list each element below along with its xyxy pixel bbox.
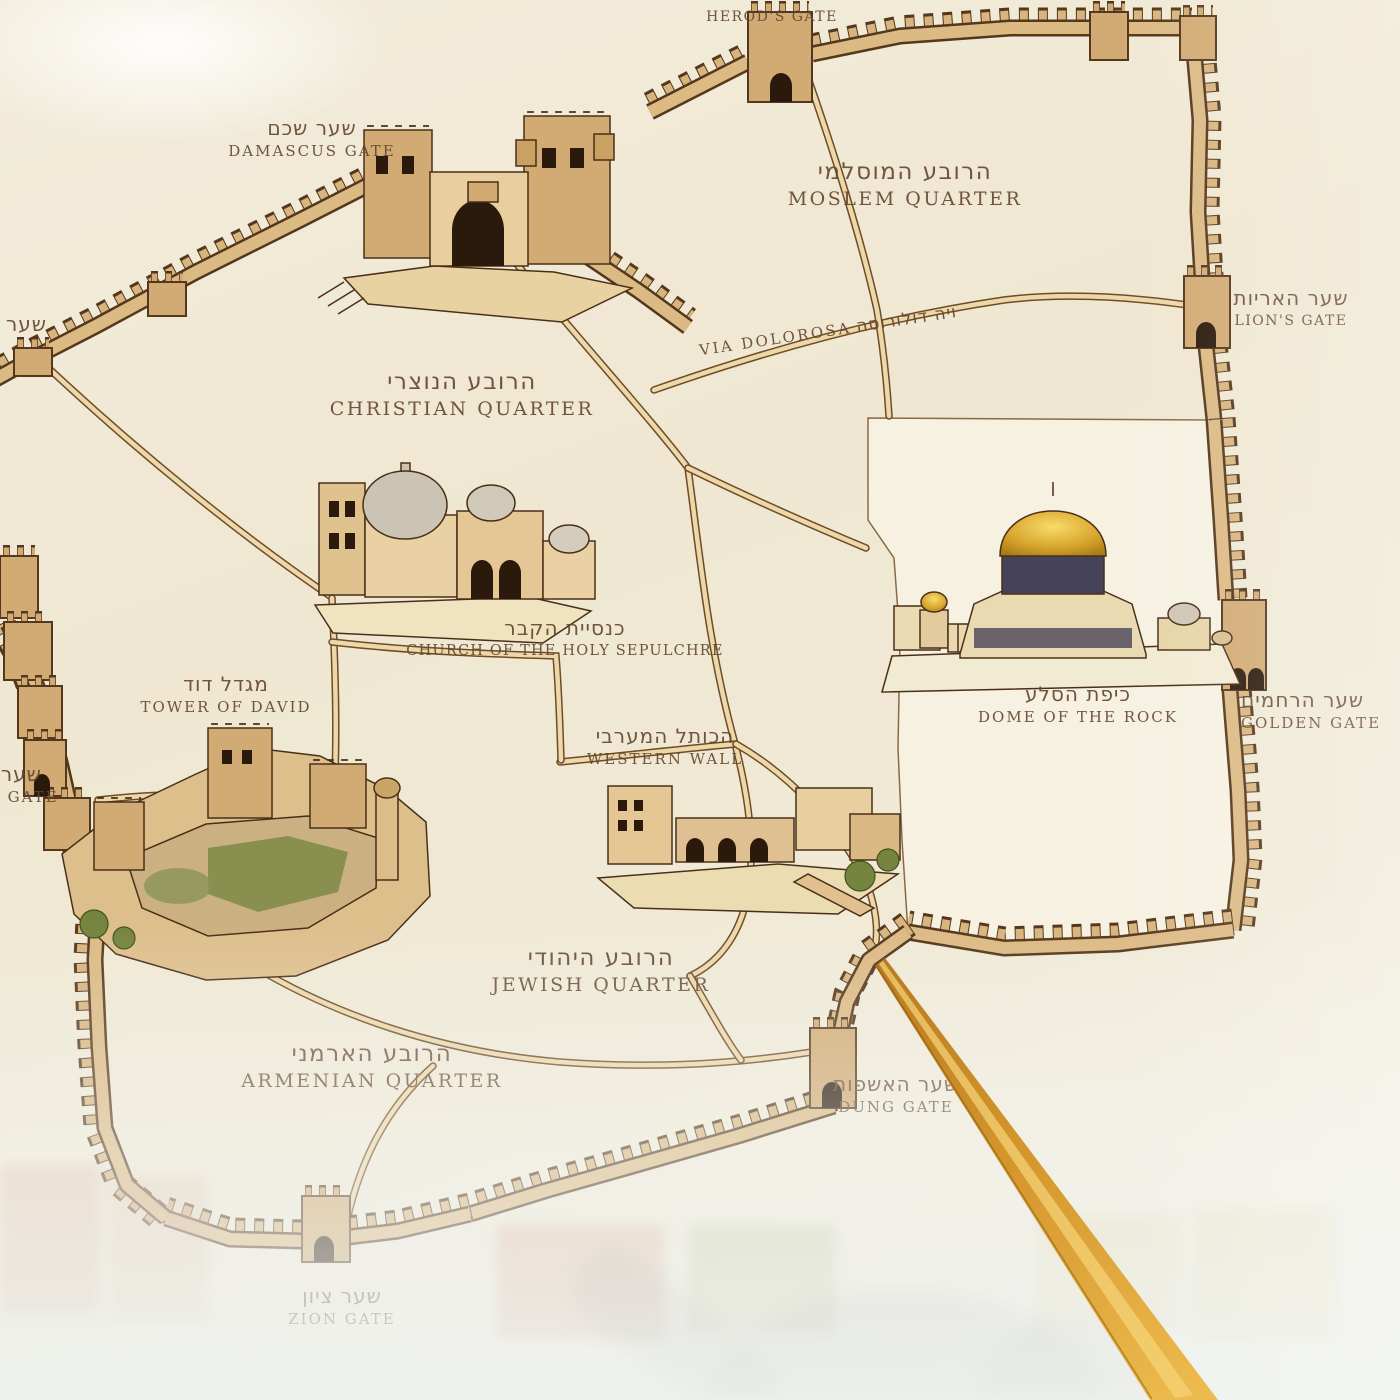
label-armenian-quarter: הרובע הארמני ARMENIAN QUARTER <box>241 1040 502 1094</box>
jaffa-gate-he: שער י <box>0 762 59 786</box>
label-christian-quarter: הרובע הנוצרי CHRISTIAN QUARTER <box>330 368 595 422</box>
western-wall-en: WESTERN WALL <box>587 748 743 771</box>
dung-gate-he: שער האשפות <box>833 1072 959 1096</box>
damascus-gate-he: שער שכם <box>228 116 395 140</box>
jewish-quarter-en: JEWISH QUARTER <box>492 972 711 998</box>
moslem-quarter-en: MOSLEM QUARTER <box>788 186 1023 212</box>
armenian-quarter-he: הרובע הארמני <box>241 1040 502 1068</box>
lions-gate-he: שער האריות <box>1233 286 1348 310</box>
label-moslem-quarter: הרובע המוסלמי MOSLEM QUARTER <box>788 158 1023 212</box>
herods-gate-en: HEROD'S GATE <box>706 6 838 29</box>
tower-of-david-en: TOWER OF DAVID <box>140 696 311 719</box>
reflection-tile <box>108 1175 208 1320</box>
via-dolorosa-en: VIA DOLOROSA <box>698 317 853 362</box>
reflection-tile <box>1192 1210 1335 1340</box>
label-tower-of-david: מגדל דוד TOWER OF DAVID <box>140 672 311 719</box>
zion-gate-tower <box>302 1196 350 1262</box>
via-dolorosa-he: ויה דולורוסה <box>855 300 959 339</box>
western-wall-he: הכותל המערבי <box>587 724 743 748</box>
reflection-tile <box>1035 1215 1180 1330</box>
western-wall-illustration <box>598 786 900 916</box>
zion-gate-he: שער ציון <box>288 1284 396 1308</box>
armenian-quarter-en: ARMENIAN QUARTER <box>241 1068 502 1094</box>
landmark-illustrations <box>62 112 1240 980</box>
label-lions-gate: שער האריות LION'S GATE <box>1233 286 1348 333</box>
label-dome-of-rock: כיפת הסלע DOME OF THE ROCK <box>978 682 1178 729</box>
label-via-dolorosa: VIA DOLOROSA ויה דולורוסה <box>698 298 975 363</box>
dome-of-rock-he: כיפת הסלע <box>978 682 1178 706</box>
tower-of-david-illustration <box>62 724 430 980</box>
reflection-tile <box>497 1225 665 1340</box>
holy-sepulchre-en: CHURCH OF THE HOLY SEPULCHRE <box>406 640 723 663</box>
dung-gate-en: DUNG GATE <box>833 1096 959 1119</box>
christian-quarter-he: הרובע הנוצרי <box>330 368 595 396</box>
reflection-tile <box>0 1165 100 1315</box>
jaffa-gate-en: A GATE <box>0 786 59 809</box>
zion-gate-en: ZION GATE <box>288 1308 396 1331</box>
label-western-wall: הכותל המערבי WESTERN WALL <box>587 724 743 771</box>
label-herods-gate: HEROD'S GATE <box>706 6 838 29</box>
label-zion-gate: שער ציון ZION GATE <box>288 1284 396 1331</box>
label-dung-gate: שער האשפות DUNG GATE <box>833 1072 959 1119</box>
dome-of-the-rock-illustration <box>882 482 1240 692</box>
new-gate-he: שער <box>6 312 47 336</box>
golden-gate-tower <box>1222 600 1266 690</box>
label-new-gate-partial: שער <box>6 312 47 336</box>
new-gate-fragment <box>14 348 52 376</box>
lions-gate-tower <box>1184 276 1230 348</box>
moslem-quarter-he: הרובע המוסלמי <box>788 158 1023 186</box>
label-damascus-gate: שער שכם DAMASCUS GATE <box>228 116 395 163</box>
label-jewish-quarter: הרובע היהודי JEWISH QUARTER <box>492 944 711 998</box>
tower-of-david-he: מגדל דוד <box>140 672 311 696</box>
damascus-gate-en: DAMASCUS GATE <box>228 140 395 163</box>
christian-quarter-en: CHRISTIAN QUARTER <box>330 396 595 422</box>
lions-gate-en: LION'S GATE <box>1233 310 1348 333</box>
label-jaffa-gate-partial: שער י A GATE <box>0 762 59 809</box>
golden-gate-en: GOLDEN GATE <box>1241 712 1381 735</box>
label-holy-sepulchre: כנסיית הקבר CHURCH OF THE HOLY SEPULCHRE <box>406 616 723 663</box>
reflection-tile <box>688 1225 836 1335</box>
dome-of-rock-en: DOME OF THE ROCK <box>978 706 1178 729</box>
golden-gate-he: שער הרחמים <box>1241 688 1381 712</box>
label-golden-gate: שער הרחמים GOLDEN GATE <box>1241 688 1381 735</box>
holy-sepulchre-he: כנסיית הקבר <box>406 616 723 640</box>
jerusalem-old-city-map-photo: HEROD'S GATE שער שכם DAMASCUS GATE הרובע… <box>0 0 1400 1400</box>
jewish-quarter-he: הרובע היהודי <box>492 944 711 972</box>
